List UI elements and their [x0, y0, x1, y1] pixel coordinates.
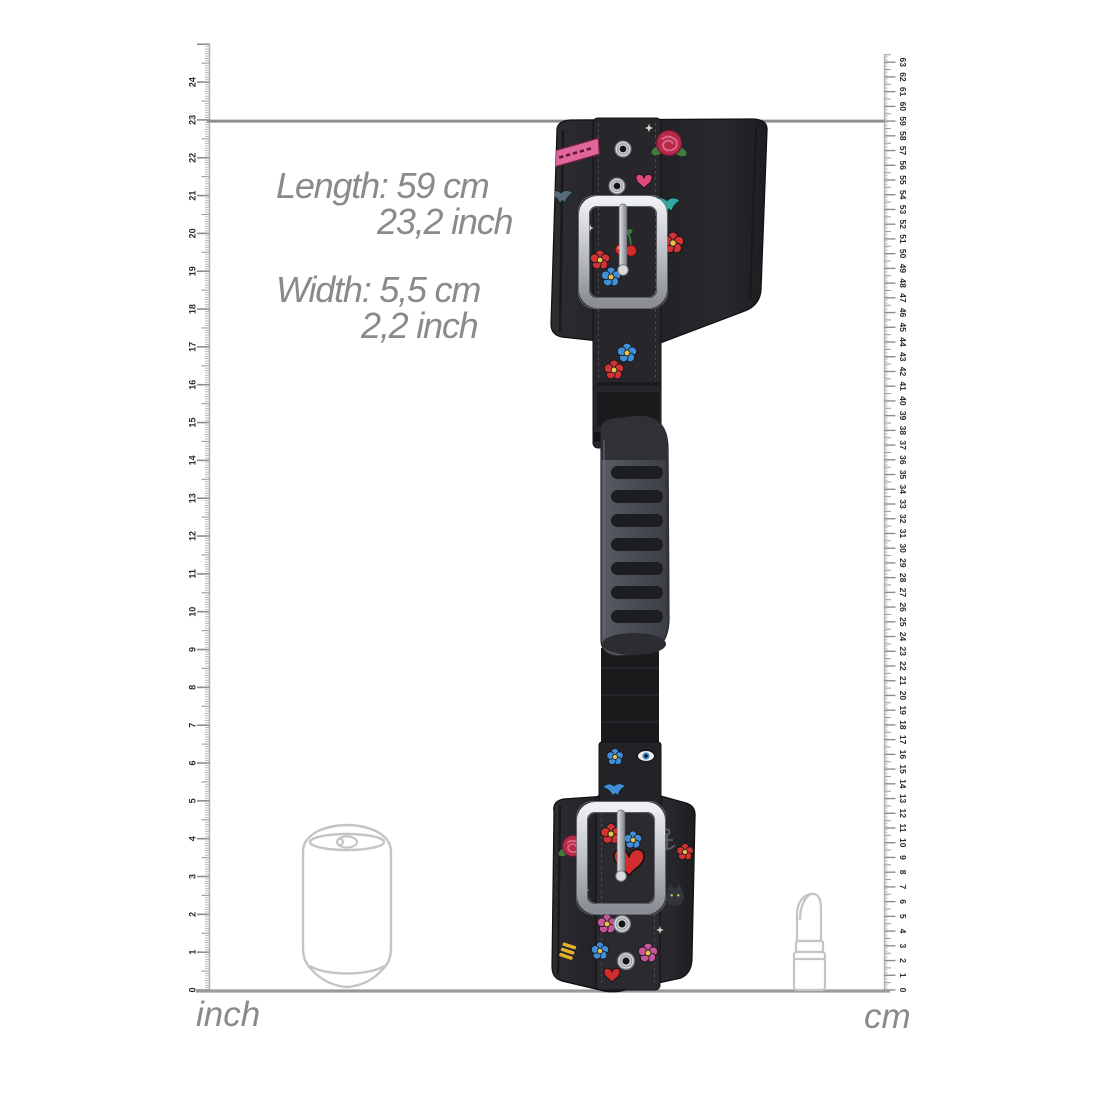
cm-number: 49 — [898, 264, 908, 274]
inch-number: 16 — [188, 380, 198, 390]
eyelet — [618, 953, 635, 970]
inch-number: 9 — [188, 647, 198, 652]
inch-number: 1 — [188, 950, 198, 955]
inch-number: 18 — [188, 304, 198, 314]
cm-number: 4 — [898, 929, 908, 934]
inch-number: 4 — [188, 836, 198, 841]
cm-number: 21 — [898, 676, 908, 686]
inch-number: 2 — [188, 912, 198, 917]
cm-number: 46 — [898, 308, 908, 318]
width-metric-text: Width: 5,5 cm — [276, 272, 480, 308]
cm-number: 11 — [898, 824, 908, 833]
cm-number: 8 — [898, 870, 908, 875]
cm-number: 31 — [898, 529, 908, 539]
cm-number: 34 — [898, 485, 908, 495]
cm-number: 57 — [898, 146, 908, 156]
inch-number: 20 — [188, 228, 198, 238]
cm-number: 20 — [898, 691, 908, 701]
cm-number: 24 — [898, 632, 908, 642]
grip-handle — [601, 416, 669, 656]
length-imperial-text: 23,2 inch — [377, 204, 512, 240]
cm-number: 43 — [898, 352, 908, 362]
cm-ruler: 0123456789101112131415161718192021222324… — [885, 54, 909, 993]
inch-number: 14 — [188, 455, 198, 465]
inch-tick-marks — [197, 44, 210, 990]
inch-number: 7 — [188, 723, 198, 728]
cm-number: 60 — [898, 102, 908, 112]
inch-number: 15 — [188, 418, 198, 428]
inch-number: 21 — [188, 191, 198, 201]
inch-number: 19 — [188, 266, 198, 276]
cm-number: 5 — [898, 914, 908, 919]
inch-ruler: 0123456789101112131415161718192021222324 — [188, 44, 210, 993]
cm-number: 50 — [898, 249, 908, 259]
diagram-canvas: 0123456789101112131415161718192021222324… — [0, 0, 1100, 1100]
inch-number: 8 — [188, 685, 198, 690]
inch-number: 23 — [188, 115, 198, 125]
lipstick-icon — [794, 894, 825, 990]
cm-number: 19 — [898, 705, 908, 715]
cm-number: 62 — [898, 72, 908, 82]
cm-number: 38 — [898, 426, 908, 436]
webbing-strap — [601, 648, 659, 748]
inch-number: 12 — [188, 531, 198, 541]
cm-number: 6 — [898, 899, 908, 904]
cm-number: 26 — [898, 602, 908, 612]
cm-number: 41 — [898, 381, 908, 391]
cm-number: 7 — [898, 885, 908, 890]
cm-number: 14 — [898, 779, 908, 789]
cm-number: 58 — [898, 131, 908, 141]
cm-number: 30 — [898, 543, 908, 553]
cm-number: 37 — [898, 440, 908, 450]
inch-number: 6 — [188, 761, 198, 766]
soda-can-icon — [303, 825, 391, 987]
cm-number: 36 — [898, 455, 908, 465]
cm-number: 0 — [898, 988, 908, 993]
cm-number: 44 — [898, 337, 908, 347]
cm-number: 48 — [898, 278, 908, 288]
product-size-diagram: 0123456789101112131415161718192021222324… — [0, 0, 1100, 1100]
cm-number: 23 — [898, 647, 908, 657]
eyelet — [614, 916, 631, 933]
cm-number: 63 — [898, 57, 908, 67]
cm-number: 22 — [898, 661, 908, 671]
cm-number: 56 — [898, 161, 908, 171]
inch-number: 24 — [188, 77, 198, 87]
product-cuffs-with-handle — [548, 118, 768, 992]
cm-number: 55 — [898, 175, 908, 185]
cm-number: 33 — [898, 499, 908, 509]
width-imperial-text: 2,2 inch — [361, 308, 478, 344]
cm-ruler-numbers: 0123456789101112131415161718192021222324… — [898, 57, 908, 992]
cm-number: 18 — [898, 720, 908, 730]
cm-number: 9 — [898, 855, 908, 860]
cm-number: 40 — [898, 396, 908, 406]
length-metric-text: Length: 59 cm — [276, 168, 489, 204]
eyelet — [615, 141, 631, 157]
cm-number: 2 — [898, 958, 908, 963]
cm-number: 32 — [898, 514, 908, 524]
cm-number: 51 — [898, 234, 908, 244]
cm-number: 47 — [898, 293, 908, 303]
cm-tick-marks — [885, 55, 896, 990]
cm-number: 25 — [898, 617, 908, 627]
cm-number: 42 — [898, 367, 908, 377]
cm-number: 1 — [898, 973, 908, 978]
cm-number: 28 — [898, 573, 908, 583]
inch-number: 10 — [188, 607, 198, 617]
cm-number: 59 — [898, 116, 908, 126]
inch-number: 11 — [188, 569, 198, 579]
cm-number: 12 — [898, 809, 908, 819]
cm-number: 10 — [898, 838, 908, 848]
cm-number: 17 — [898, 735, 908, 745]
cm-number: 29 — [898, 558, 908, 568]
cm-number: 35 — [898, 470, 908, 480]
inch-ruler-numbers: 0123456789101112131415161718192021222324 — [188, 77, 198, 992]
cm-number: 45 — [898, 323, 908, 333]
eyelet — [609, 178, 625, 194]
cm-number: 3 — [898, 943, 908, 948]
inch-number: 3 — [188, 874, 198, 879]
cm-number: 52 — [898, 219, 908, 229]
cm-number: 16 — [898, 750, 908, 760]
inch-number: 22 — [188, 153, 198, 163]
cm-number: 54 — [898, 190, 908, 200]
cm-number: 13 — [898, 794, 908, 804]
cm-number: 39 — [898, 411, 908, 421]
cm-number: 61 — [898, 87, 908, 97]
inch-number: 13 — [188, 493, 198, 503]
cm-number: 53 — [898, 205, 908, 215]
inch-number: 17 — [188, 342, 198, 352]
inch-number: 5 — [188, 798, 198, 803]
cm-unit-label: cm — [864, 1000, 911, 1034]
inch-unit-label: inch — [196, 998, 260, 1032]
cm-number: 27 — [898, 588, 908, 598]
cm-number: 15 — [898, 764, 908, 774]
